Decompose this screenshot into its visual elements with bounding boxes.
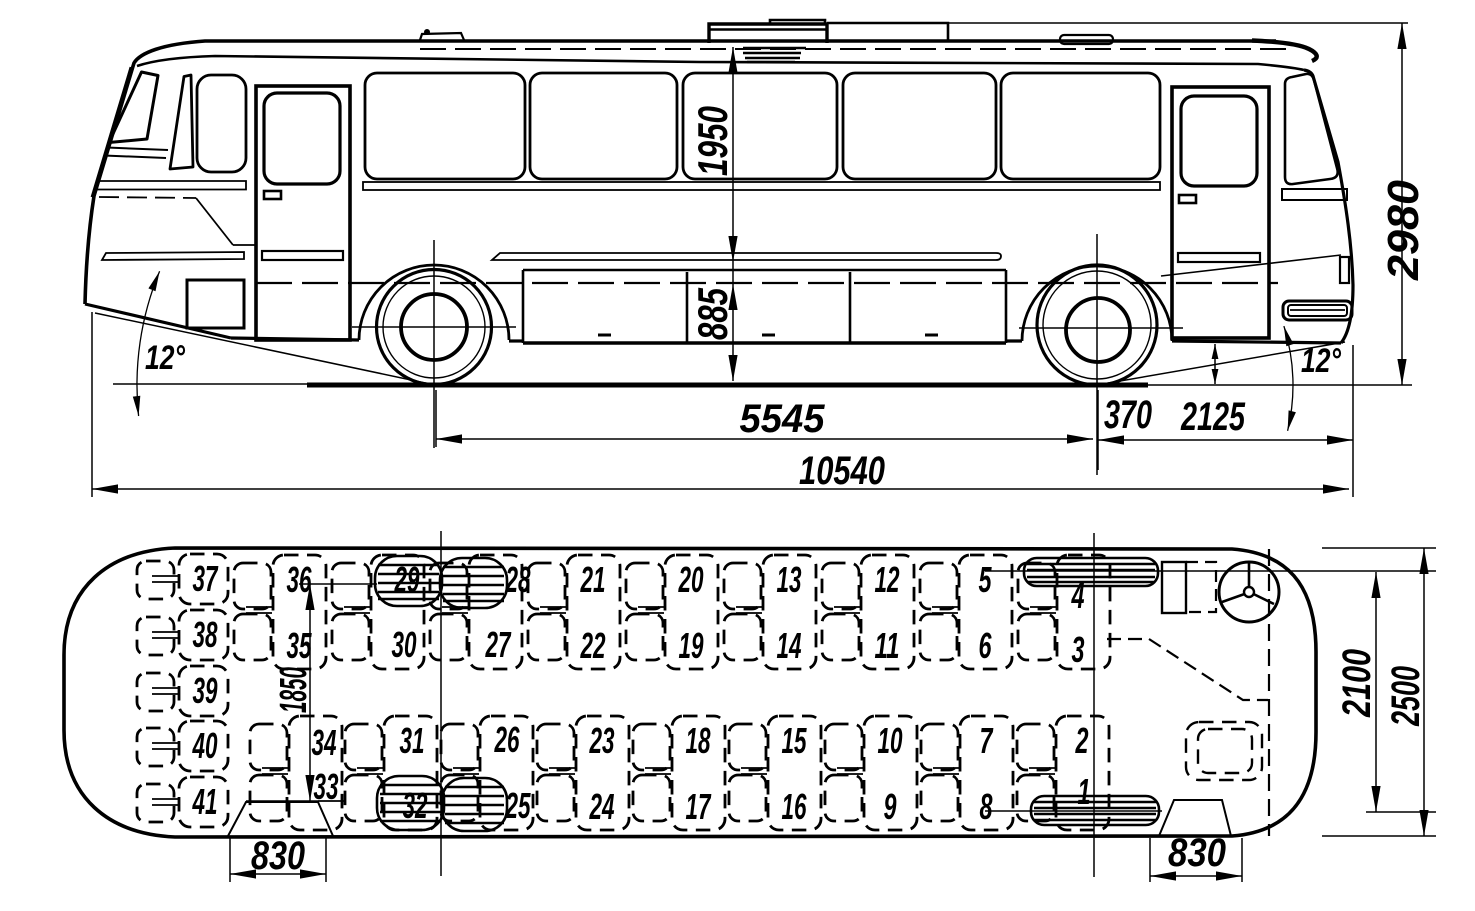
svg-text:8: 8 (980, 786, 993, 827)
svg-text:9: 9 (884, 786, 897, 827)
svg-text:12: 12 (875, 559, 900, 600)
svg-text:3: 3 (1072, 629, 1085, 670)
svg-text:15: 15 (782, 720, 808, 761)
svg-text:35: 35 (287, 625, 313, 666)
svg-text:22: 22 (580, 625, 606, 666)
svg-text:23: 23 (589, 720, 615, 761)
svg-text:24: 24 (589, 786, 615, 827)
svg-text:885: 885 (689, 288, 736, 340)
svg-text:2980: 2980 (1379, 179, 1428, 281)
svg-text:14: 14 (777, 625, 802, 666)
svg-text:31: 31 (400, 720, 425, 761)
svg-text:830: 830 (251, 834, 305, 878)
svg-text:41: 41 (192, 781, 218, 822)
svg-text:39: 39 (193, 670, 218, 711)
svg-text:26: 26 (494, 719, 520, 760)
svg-text:17: 17 (686, 786, 712, 827)
svg-text:7: 7 (980, 720, 994, 761)
svg-text:30: 30 (392, 624, 417, 665)
svg-text:20: 20 (678, 559, 704, 600)
svg-text:1950: 1950 (689, 106, 736, 176)
svg-text:21: 21 (580, 559, 606, 600)
svg-text:11: 11 (875, 625, 900, 666)
svg-text:40: 40 (192, 725, 218, 766)
svg-text:10540: 10540 (799, 449, 885, 493)
svg-text:2500: 2500 (1384, 666, 1428, 727)
svg-text:18: 18 (686, 720, 711, 761)
svg-text:5: 5 (979, 559, 993, 600)
svg-text:2100: 2100 (1335, 649, 1379, 718)
svg-text:10: 10 (878, 720, 903, 761)
svg-text:2: 2 (1075, 720, 1089, 761)
svg-text:34: 34 (312, 722, 337, 763)
svg-text:13: 13 (777, 559, 802, 600)
svg-text:27: 27 (485, 624, 512, 665)
svg-text:37: 37 (193, 558, 219, 599)
svg-text:38: 38 (193, 614, 218, 655)
svg-text:12°: 12° (145, 339, 185, 377)
svg-text:2125: 2125 (1180, 395, 1245, 439)
svg-text:19: 19 (679, 625, 704, 666)
svg-text:16: 16 (782, 786, 808, 827)
svg-text:6: 6 (979, 625, 993, 666)
svg-text:25: 25 (505, 785, 531, 826)
svg-text:5545: 5545 (740, 397, 826, 441)
svg-text:830: 830 (1168, 831, 1226, 875)
svg-text:1: 1 (1078, 771, 1091, 812)
svg-text:1850: 1850 (273, 667, 315, 713)
svg-text:370: 370 (1104, 393, 1152, 437)
svg-text:12°: 12° (1301, 342, 1341, 380)
